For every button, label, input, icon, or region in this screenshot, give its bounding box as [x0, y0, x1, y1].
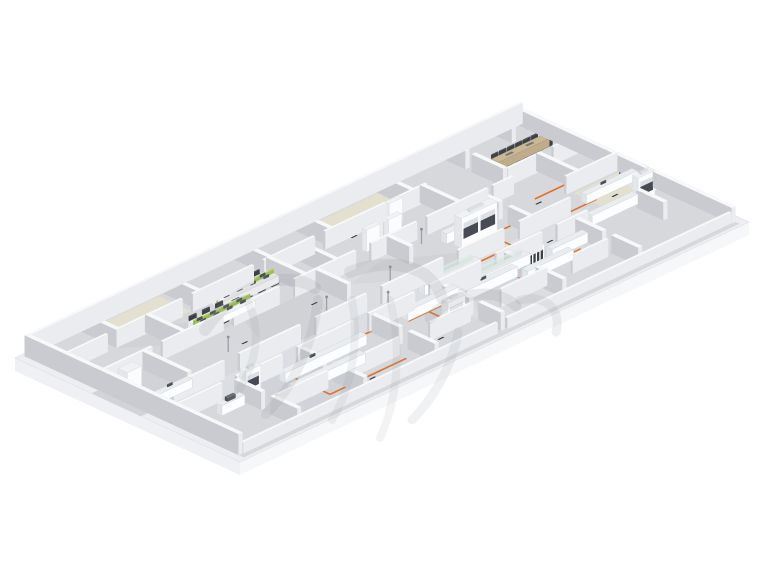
- floorplan-render: [0, 0, 760, 570]
- isometric-floorplan-svg: [0, 0, 760, 570]
